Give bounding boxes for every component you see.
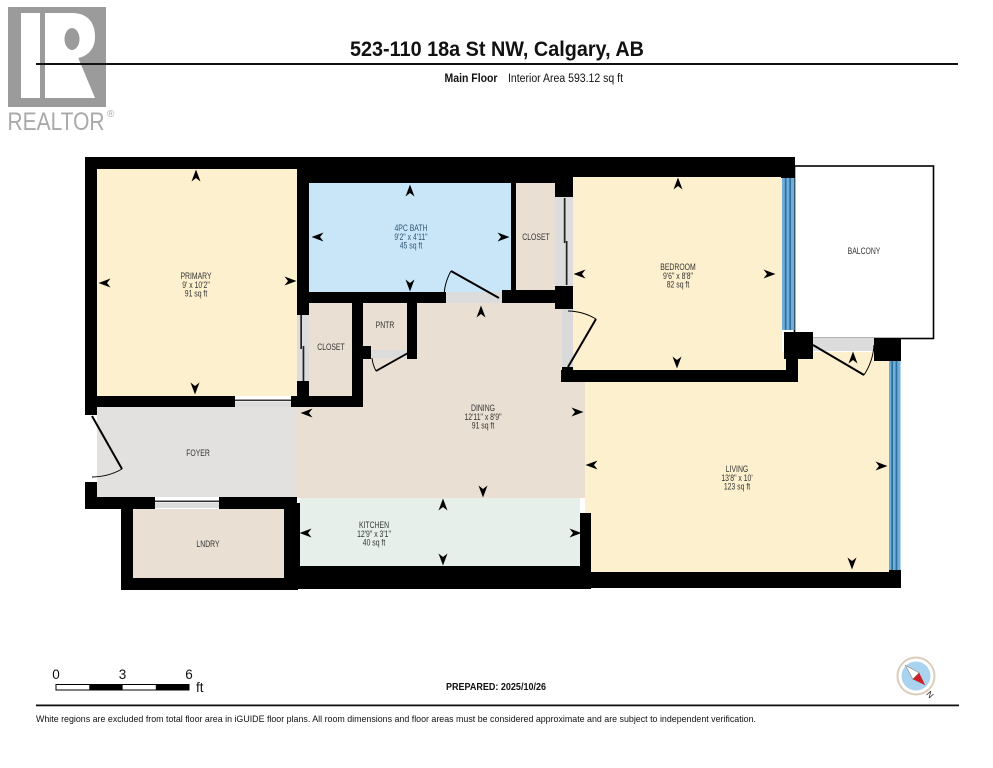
- svg-text:91 sq ft: 91 sq ft: [185, 289, 208, 299]
- svg-text:FOYER: FOYER: [186, 448, 210, 458]
- svg-text:CLOSET: CLOSET: [317, 342, 345, 352]
- svg-text:123 sq ft: 123 sq ft: [724, 482, 751, 492]
- svg-text:45 sq ft: 45 sq ft: [400, 241, 423, 251]
- svg-text:PNTR: PNTR: [376, 320, 395, 330]
- svg-text:PREPARED: 2025/10/26: PREPARED: 2025/10/26: [446, 681, 546, 693]
- svg-text:White regions are excluded fro: White regions are excluded from total fl…: [36, 713, 756, 724]
- svg-text:82 sq ft: 82 sq ft: [667, 280, 690, 290]
- svg-text:Main Floor: Main Floor: [445, 73, 498, 85]
- svg-text:Interior Area 593.12 sq ft: Interior Area 593.12 sq ft: [508, 73, 624, 85]
- svg-text:40 sq ft: 40 sq ft: [363, 538, 386, 548]
- svg-text:®: ®: [107, 109, 115, 120]
- svg-text:6: 6: [185, 667, 193, 682]
- svg-text:CLOSET: CLOSET: [522, 232, 550, 242]
- svg-text:LNDRY: LNDRY: [196, 539, 220, 549]
- svg-text:REALTOR: REALTOR: [8, 108, 105, 136]
- svg-text:3: 3: [119, 667, 127, 682]
- svg-text:BALCONY: BALCONY: [848, 246, 881, 256]
- svg-text:ft: ft: [196, 680, 204, 695]
- svg-text:91 sq ft: 91 sq ft: [472, 421, 495, 431]
- svg-text:0: 0: [52, 667, 60, 682]
- svg-text:523-110 18a St NW, Calgary, AB: 523-110 18a St NW, Calgary, AB: [350, 38, 644, 61]
